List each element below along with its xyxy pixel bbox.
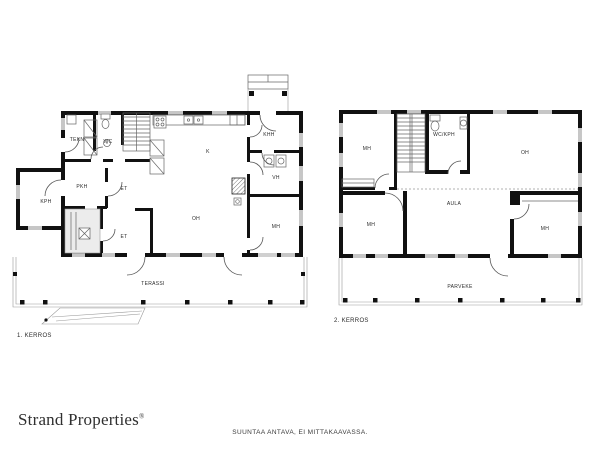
room-label-terassi: TERASSI xyxy=(141,281,165,287)
room-label-mh-top-left: MH xyxy=(363,146,371,152)
room-label-pkh: PKH xyxy=(76,184,87,190)
brand-logo: Strand Properties® xyxy=(18,410,145,430)
floor2-room-labels: MH WC/KPH OH AULA MH MH PARVEKE xyxy=(363,132,549,290)
room-label-oh: OH xyxy=(192,216,200,222)
room-label-tekn: TEKN xyxy=(70,137,85,143)
balcony-deck xyxy=(339,258,582,305)
windows xyxy=(16,111,303,257)
fireplace-icon xyxy=(232,178,245,205)
room-label-mh-bottom-right: MH xyxy=(541,226,549,232)
floor1-caption: 1. KERROS xyxy=(17,333,52,339)
floor2-plan: MH WC/KPH OH AULA MH MH PARVEKE xyxy=(330,100,595,325)
terrace-deck xyxy=(13,257,307,324)
wardrobe-icon xyxy=(67,115,164,174)
ramp-icon xyxy=(42,308,145,324)
room-label-parveke: PARVEKE xyxy=(447,284,473,290)
room-label-et-lower: ET xyxy=(121,234,128,240)
stairs-icon xyxy=(397,114,425,172)
floorplan-sheet: TEKN WC K KHH PKH ET KPH ET OH VH MH TER… xyxy=(0,0,600,450)
room-label-aula: AULA xyxy=(447,201,462,207)
disclaimer-text: SUUNTAA ANTAVA, EI MITTAKAAVASSA. xyxy=(232,429,368,436)
exterior-walls xyxy=(16,111,303,257)
room-label-khh: KHH xyxy=(263,132,275,138)
registered-trademark-icon: ® xyxy=(139,412,145,420)
laundry-machines-icon xyxy=(264,155,286,167)
interior-walls xyxy=(341,114,578,254)
floor2-caption: 2. KERROS xyxy=(334,318,369,324)
entry-porch xyxy=(248,75,288,111)
door-arcs xyxy=(375,161,529,276)
kitchen-counter-icon xyxy=(153,115,245,128)
room-label-kph: KPH xyxy=(40,199,51,205)
room-label-k: K xyxy=(206,149,210,155)
room-label-mh-bottom-left: MH xyxy=(367,222,375,228)
room-label-et-upper: ET xyxy=(121,186,128,192)
room-label-wc: WC xyxy=(104,139,113,145)
floor1-plan: TEKN WC K KHH PKH ET KPH ET OH VH MH TER… xyxy=(8,70,318,340)
sauna-icon xyxy=(65,209,100,253)
brand-logo-text: Strand Properties xyxy=(18,410,139,429)
wc-fixtures-icon xyxy=(430,115,467,131)
room-label-oh: OH xyxy=(521,150,529,156)
room-label-mh: MH xyxy=(272,224,280,230)
room-label-wc-kph: WC/KPH xyxy=(433,132,455,138)
stairs-icon xyxy=(123,113,150,151)
room-label-vh: VH xyxy=(272,175,280,181)
